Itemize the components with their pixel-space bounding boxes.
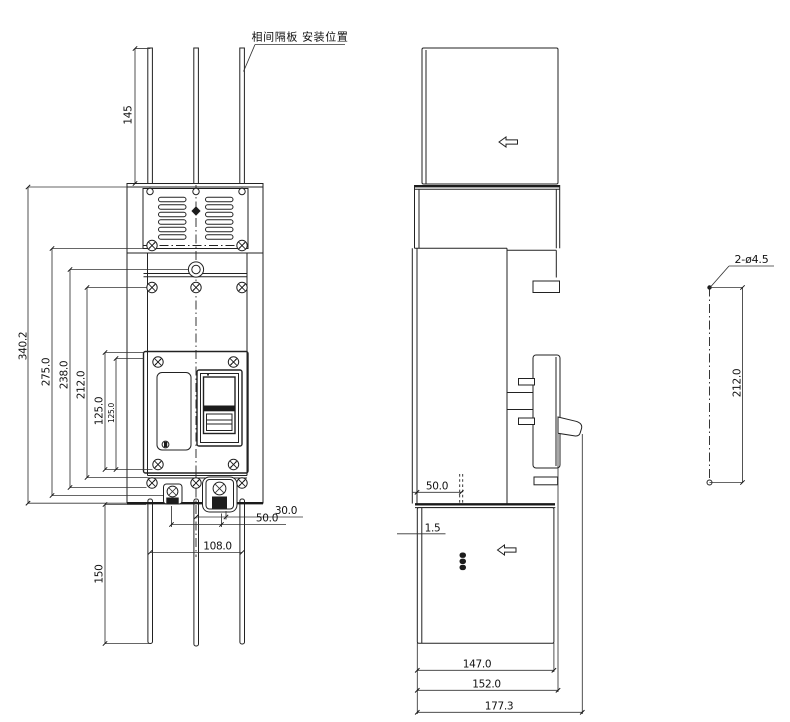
dim-height-212: 212.0 [76, 371, 88, 400]
dim-depth-177: 177.3 [485, 700, 514, 712]
bottom-clip [534, 477, 558, 485]
dim-depth-147: 147.0 [463, 658, 492, 670]
phase-barrier-note: 相间隔板 安装位置 [244, 30, 349, 72]
dim-height-125-outer: 125.0 [94, 397, 106, 426]
dim-barrier-depth-50: 50.0 [426, 480, 448, 492]
dim-separator-top-length: 145 [123, 105, 135, 124]
center-screw [188, 262, 203, 277]
terminal-lug-right [203, 477, 238, 512]
toggle-handle-side [558, 417, 582, 436]
phase-separator-bars-top [148, 48, 245, 190]
dim-height-238: 238.0 [59, 361, 71, 390]
dim-height-125-inner: 125.0 [107, 402, 116, 422]
side-view [412, 48, 581, 643]
phase-separator-bars-bottom [148, 499, 245, 646]
hole-detail: 2-ø4.5 212.0 [707, 253, 774, 485]
drawing-canvas: 相间隔板 安装位置 145 340.2 275.0 238.0 212.0 12… [0, 0, 790, 722]
dim-depth-152: 152.0 [472, 678, 501, 690]
phase-barrier-side [422, 48, 558, 184]
toggle-switch [197, 370, 242, 446]
dim-offset-30: 30.0 [275, 505, 297, 517]
dim-separator-bottom-length: 150 [94, 564, 106, 583]
hole-callout-label: 2-ø4.5 [735, 253, 769, 266]
terminal-lug-left [164, 484, 183, 504]
dim-offset-50: 50.0 [256, 513, 278, 525]
accessory-opening [157, 373, 191, 451]
top-clip [533, 281, 560, 293]
toggle-handle [204, 377, 236, 434]
phase-barrier-note-label: 相间隔板 安装位置 [252, 30, 349, 44]
dim-hole-spacing-212: 212.0 [732, 369, 744, 398]
dim-overall-height: 340.2 [18, 332, 30, 361]
mounting-band [414, 185, 560, 187]
front-view [127, 48, 263, 646]
dim-height-275: 275.0 [41, 358, 53, 387]
dim-gap-1-5: 1.5 [425, 522, 441, 534]
marking-dots [460, 553, 467, 571]
breaker-dimension-drawing: 相间隔板 安装位置 145 340.2 275.0 238.0 212.0 12… [0, 0, 790, 722]
dim-pitch-108: 108.0 [203, 541, 232, 553]
